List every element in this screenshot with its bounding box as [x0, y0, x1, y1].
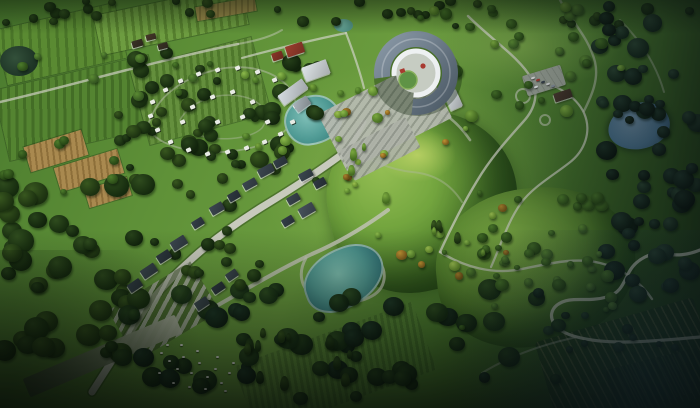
- tree: [172, 179, 183, 189]
- courtyard-red-accent: [420, 63, 425, 68]
- tree: [344, 188, 350, 193]
- tree: [309, 107, 323, 120]
- tree: [175, 89, 182, 96]
- tree: [18, 150, 27, 159]
- tree: [109, 156, 119, 165]
- tree: [343, 174, 349, 179]
- tree: [59, 136, 69, 145]
- tree: [242, 133, 249, 139]
- tree: [172, 62, 179, 68]
- tree: [160, 74, 175, 87]
- tree: [186, 190, 195, 198]
- tree: [34, 53, 41, 59]
- tree: [277, 72, 286, 80]
- tree: [145, 81, 159, 94]
- bottom-right-blue-cast: [420, 230, 700, 408]
- tree: [88, 74, 99, 84]
- tree: [197, 88, 211, 101]
- tree: [114, 111, 123, 119]
- tree: [101, 52, 107, 57]
- tree: [156, 107, 167, 117]
- tree: [60, 189, 67, 195]
- tree: [380, 153, 386, 158]
- tree: [282, 54, 301, 71]
- tree: [133, 91, 144, 101]
- tree: [131, 174, 155, 196]
- tree: [152, 118, 162, 127]
- tree: [107, 174, 118, 184]
- aerial-masterplan-rendering: [0, 0, 700, 408]
- tree: [17, 62, 28, 72]
- conifer-tree: [350, 148, 357, 161]
- tree: [135, 54, 145, 63]
- bottom-left-vignette: [0, 250, 260, 408]
- conifer-tree: [382, 192, 389, 204]
- tree: [28, 212, 46, 228]
- tree: [278, 146, 288, 155]
- tree: [255, 143, 262, 150]
- courtyard-garden: [399, 71, 417, 89]
- tree: [213, 77, 221, 84]
- tree: [335, 136, 342, 142]
- conifer-tree: [348, 165, 354, 176]
- tree: [80, 178, 100, 196]
- tree: [3, 169, 14, 179]
- tree: [126, 164, 134, 171]
- tree: [18, 190, 37, 207]
- tree: [160, 147, 175, 160]
- tree: [198, 119, 213, 133]
- tree: [252, 77, 259, 83]
- tree: [126, 125, 140, 138]
